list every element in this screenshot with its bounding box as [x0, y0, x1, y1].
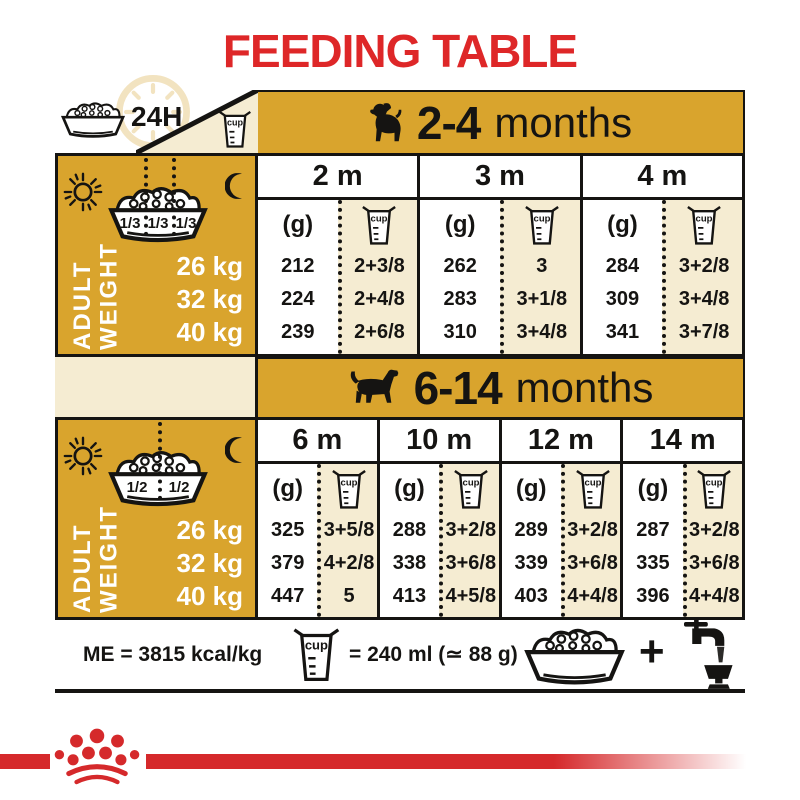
month-label: 10 m [380, 420, 499, 464]
adult-label: ADULT [70, 507, 96, 613]
month-label: 4 m [583, 156, 742, 200]
grams-subcolumn: (g)289339403 [502, 464, 561, 617]
spacer-block [55, 357, 258, 417]
grams-cell: 288 [380, 514, 439, 547]
cup-icon [443, 464, 498, 514]
weight-label: WEIGHT [96, 507, 122, 613]
cups-subcolumn: 33+1/83+4/8 [500, 200, 580, 354]
age-suffix-label: months [494, 99, 632, 147]
cup-icon [342, 200, 418, 250]
sun-icon [63, 436, 103, 476]
section2-left-panel: 1/21/2 ADULT WEIGHT 26 kg32 kg40 kg [58, 420, 258, 617]
cups-cell: 2+6/8 [342, 316, 418, 349]
food-bowl-icon [57, 98, 129, 140]
measuring-cup-icon [292, 625, 341, 685]
weight-row-label: 26 kg [177, 250, 244, 283]
month-column-body: (g)289339403 3+2/83+6/84+4/8 [502, 464, 621, 617]
month-label: 14 m [623, 420, 742, 464]
section1-left-panel: 1/31/31/3 ADULT WEIGHT 26 kg32 kg40 kg [58, 156, 258, 354]
grams-cell: 284 [583, 250, 663, 283]
weight-row-label: 40 kg [177, 580, 244, 613]
month-column: 2 m (g)212224239 2+3/82+4/82+6/8 [258, 156, 417, 354]
month-column: 6 m (g)325379447 3+5/84+2/85 [258, 420, 377, 617]
cups-subcolumn: 2+3/82+4/82+6/8 [338, 200, 418, 354]
brand-footer [0, 728, 800, 800]
grams-cell: 341 [583, 316, 663, 349]
daily-ration-legend: 24H [55, 90, 258, 153]
cups-cell: 4+4/8 [565, 580, 620, 613]
cups-cell: 3+2/8 [443, 514, 498, 547]
cups-cell: 4+5/8 [443, 580, 498, 613]
grams-unit-label: (g) [502, 464, 561, 514]
portion-fraction-label: 1/3 [148, 215, 169, 232]
cups-cell: 5 [321, 580, 376, 613]
month-column: 3 m (g)262283310 33+1/83+4/8 [417, 156, 579, 354]
age-suffix-label: months [516, 364, 654, 412]
section2-months-grid: 6 m (g)325379447 3+5/84+2/85 10 m (g)288… [258, 420, 742, 617]
cup-icon [504, 200, 580, 250]
cups-cell: 2+4/8 [342, 283, 418, 316]
measuring-cup-icon [218, 109, 252, 150]
water-faucet-icon [673, 619, 733, 691]
grams-subcolumn: (g)212224239 [258, 200, 338, 354]
sun-icon [63, 172, 103, 212]
month-column: 4 m (g)284309341 3+2/83+4/83+7/8 [580, 156, 742, 354]
royal-canin-crown-logo [50, 728, 144, 790]
cups-cell: 3+7/8 [666, 316, 742, 349]
grams-subcolumn: (g)325379447 [258, 464, 317, 617]
month-column-body: (g)288338413 3+2/83+6/84+5/8 [380, 464, 499, 617]
grams-cell: 262 [420, 250, 500, 283]
adult-dog-icon [348, 368, 400, 408]
cups-cell: 3+4/8 [504, 316, 580, 349]
weight-row-label: 32 kg [177, 547, 244, 580]
grams-cell: 310 [420, 316, 500, 349]
month-label: 12 m [502, 420, 621, 464]
cup-equivalence-label: = 240 ml (≃ 88 g) [349, 642, 518, 667]
grams-cell: 379 [258, 547, 317, 580]
puppy-icon [369, 102, 403, 143]
grams-unit-label: (g) [380, 464, 439, 514]
meal-split-legend: 1/31/31/3 [58, 156, 255, 253]
month-label: 2 m [258, 156, 417, 200]
cups-cell: 3 [504, 250, 580, 283]
month-column-body: (g)325379447 3+5/84+2/85 [258, 464, 377, 617]
grams-subcolumn: (g)287335396 [623, 464, 682, 617]
cups-subcolumn: 3+2/83+4/83+7/8 [662, 200, 742, 354]
cups-subcolumn: 3+2/83+6/84+5/8 [439, 464, 498, 617]
grams-unit-label: (g) [583, 200, 663, 250]
grams-unit-label: (g) [420, 200, 500, 250]
grams-subcolumn: (g)284309341 [583, 200, 663, 354]
portion-fraction-label: 1/2 [169, 479, 190, 496]
month-label: 3 m [420, 156, 579, 200]
moon-icon [225, 172, 246, 200]
cups-cell: 3+6/8 [687, 547, 742, 580]
weight-row-label: 26 kg [177, 514, 244, 547]
portion-divider-dash [158, 422, 162, 500]
section1-header-row: 24H 2-4 months [55, 90, 745, 153]
cups-cell: 3+6/8 [443, 547, 498, 580]
age-range-label: 6-14 [414, 361, 502, 415]
month-column-body: (g)284309341 3+2/83+4/83+7/8 [583, 200, 742, 354]
month-label: 6 m [258, 420, 377, 464]
grams-unit-label: (g) [258, 464, 317, 514]
grams-cell: 339 [502, 547, 561, 580]
grams-cell: 325 [258, 514, 317, 547]
grams-cell: 403 [502, 580, 561, 613]
portion-fraction-label: 1/3 [120, 215, 141, 232]
grams-cell: 309 [583, 283, 663, 316]
table-footer: ME = 3815 kcal/kg = 240 ml (≃ 88 g) + [55, 620, 745, 693]
food-bowl-icon [102, 182, 214, 244]
month-column: 10 m (g)288338413 3+2/83+6/84+5/8 [377, 420, 499, 617]
cups-subcolumn: 3+2/83+6/84+4/8 [561, 464, 620, 617]
adult-label: ADULT [70, 244, 96, 350]
moon-icon [225, 436, 246, 464]
grams-subcolumn: (g)262283310 [420, 200, 500, 354]
weight-rows: 26 kg32 kg40 kg [177, 514, 244, 613]
cups-cell: 4+2/8 [321, 547, 376, 580]
cup-icon [565, 464, 620, 514]
grams-cell: 287 [623, 514, 682, 547]
grams-unit-label: (g) [258, 200, 338, 250]
weight-row-label: 32 kg [177, 283, 244, 316]
cups-subcolumn: 3+2/83+6/84+4/8 [683, 464, 742, 617]
cup-icon [666, 200, 742, 250]
food-bowl-icon [518, 623, 631, 687]
grams-cell: 289 [502, 514, 561, 547]
adult-weight-label: ADULT WEIGHT [70, 244, 123, 350]
month-column: 14 m (g)287335396 3+2/83+6/84+4/8 [620, 420, 742, 617]
cups-cell: 4+4/8 [687, 580, 742, 613]
cups-cell: 3+5/8 [321, 514, 376, 547]
age-band-2-4-months: 2-4 months [258, 90, 745, 153]
weight-row-label: 40 kg [177, 316, 244, 349]
cups-cell: 2+3/8 [342, 250, 418, 283]
feeding-table: 24H 2-4 months 1/31/31/3 ADULT [55, 90, 745, 693]
section2-table: 1/21/2 ADULT WEIGHT 26 kg32 kg40 kg 6 m … [55, 417, 745, 620]
fraction-bowl: 1/21/2 [102, 422, 214, 516]
grams-cell: 396 [623, 580, 682, 613]
cups-subcolumn: 3+5/84+2/85 [317, 464, 376, 617]
age-range-label: 2-4 [417, 96, 480, 150]
grams-subcolumn: (g)288338413 [380, 464, 439, 617]
grams-cell: 224 [258, 283, 338, 316]
adult-weight-label: ADULT WEIGHT [70, 507, 123, 613]
cup-icon [687, 464, 742, 514]
month-column-body: (g)212224239 2+3/82+4/82+6/8 [258, 200, 417, 354]
plus-sign: + [639, 627, 665, 677]
cups-cell: 3+2/8 [687, 514, 742, 547]
grams-unit-label: (g) [623, 464, 682, 514]
section1-table: 1/31/31/3 ADULT WEIGHT 26 kg32 kg40 kg 2… [55, 153, 745, 357]
grams-cell: 338 [380, 547, 439, 580]
cup-icon [321, 464, 376, 514]
age-band-6-14-months: 6-14 months [258, 357, 745, 417]
month-column-body: (g)287335396 3+2/83+6/84+4/8 [623, 464, 742, 617]
cups-cell: 3+2/8 [565, 514, 620, 547]
red-stripe-left [0, 754, 50, 769]
portion-fraction-label: 1/2 [127, 479, 148, 496]
section2-header-row: 6-14 months [55, 357, 745, 417]
grams-cell: 413 [380, 580, 439, 613]
metabolizable-energy-label: ME = 3815 kcal/kg [83, 643, 262, 667]
cups-cell: 3+6/8 [565, 547, 620, 580]
grams-cell: 447 [258, 580, 317, 613]
cups-cell: 3+2/8 [666, 250, 742, 283]
red-stripe-right [146, 754, 746, 769]
grams-cell: 239 [258, 316, 338, 349]
section1-months-grid: 2 m (g)212224239 2+3/82+4/82+6/8 3 m (g)… [258, 156, 742, 354]
fraction-bowl: 1/31/31/3 [102, 158, 214, 252]
cups-cell: 3+4/8 [666, 283, 742, 316]
weight-label: WEIGHT [96, 244, 122, 350]
month-column-body: (g)262283310 33+1/83+4/8 [420, 200, 579, 354]
grams-cell: 335 [623, 547, 682, 580]
meal-split-legend: 1/21/2 [58, 420, 255, 517]
portion-fraction-label: 1/3 [176, 215, 197, 232]
weight-rows: 26 kg32 kg40 kg [177, 250, 244, 349]
grams-cell: 212 [258, 250, 338, 283]
cups-cell: 3+1/8 [504, 283, 580, 316]
grams-cell: 283 [420, 283, 500, 316]
month-column: 12 m (g)289339403 3+2/83+6/84+4/8 [499, 420, 621, 617]
